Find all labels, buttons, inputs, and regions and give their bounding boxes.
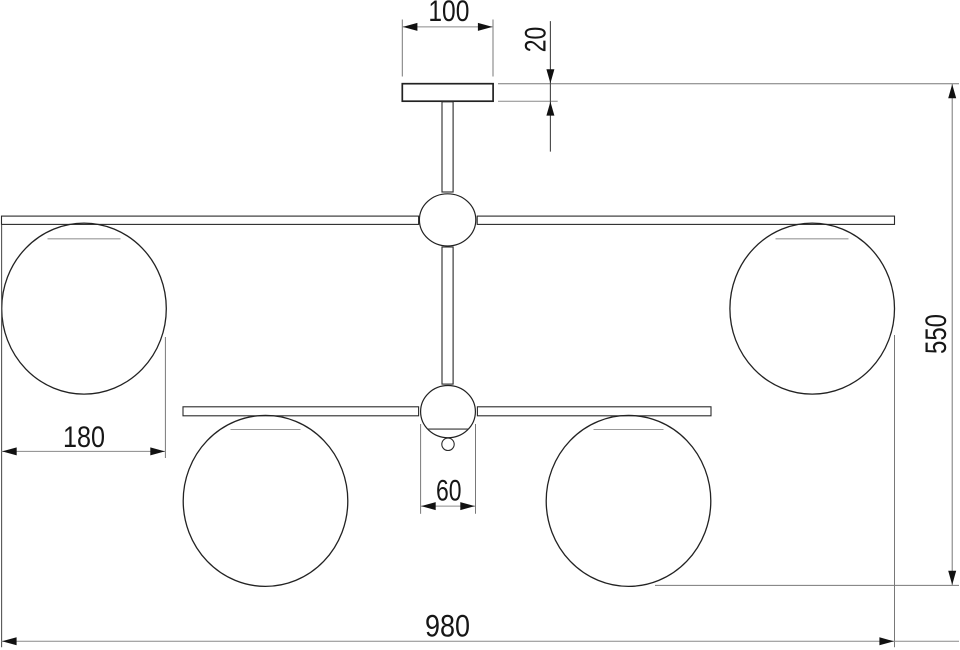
svg-text:60: 60 — [436, 475, 462, 508]
svg-text:980: 980 — [425, 608, 470, 644]
svg-text:550: 550 — [920, 314, 953, 354]
svg-text:100: 100 — [428, 0, 469, 28]
svg-text:20: 20 — [520, 27, 553, 53]
svg-text:180: 180 — [63, 421, 105, 454]
